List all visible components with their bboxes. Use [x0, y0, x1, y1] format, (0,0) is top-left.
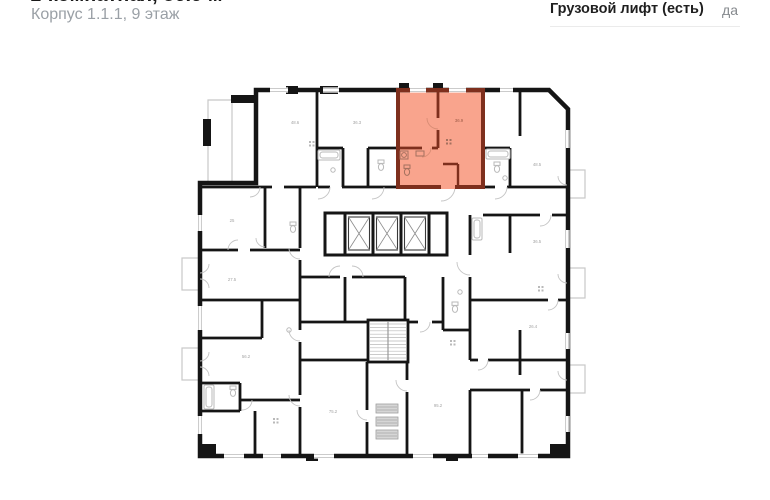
svg-text:25: 25: [230, 218, 235, 223]
svg-text:75.2: 75.2: [329, 409, 338, 414]
toilet: [452, 302, 458, 312]
bathtub: [204, 385, 214, 409]
highlighted-apartment-fill: [398, 90, 483, 187]
svg-text:95.2: 95.2: [434, 403, 443, 408]
svg-text:48.5: 48.5: [533, 162, 542, 167]
svg-text:36.9: 36.9: [455, 118, 464, 123]
toilet: [290, 222, 296, 232]
elevator-core: [325, 213, 447, 255]
bathtub: [318, 150, 340, 160]
floor-plan: 48.636.336.948.536.526.42527.556.275.295…: [0, 0, 770, 500]
windows: [197, 87, 569, 458]
svg-text:36.3: 36.3: [353, 120, 362, 125]
svg-text:27.5: 27.5: [228, 277, 237, 282]
sink: [331, 168, 335, 172]
sink: [458, 290, 462, 294]
toilet: [230, 386, 236, 396]
stove: [538, 286, 544, 292]
bathtub: [472, 218, 482, 240]
stove: [309, 141, 315, 147]
svg-text:48.6: 48.6: [291, 120, 300, 125]
mailboxes: [376, 404, 398, 439]
stove: [450, 340, 456, 346]
stove: [273, 418, 279, 424]
elevator-doors: [349, 217, 426, 250]
bathtub: [486, 149, 510, 159]
svg-text:56.2: 56.2: [242, 354, 251, 359]
toilet: [378, 160, 384, 170]
toilet: [494, 162, 500, 172]
svg-text:26.4: 26.4: [529, 324, 538, 329]
staircase: [368, 320, 408, 362]
svg-text:36.5: 36.5: [533, 239, 542, 244]
sink: [503, 176, 507, 180]
